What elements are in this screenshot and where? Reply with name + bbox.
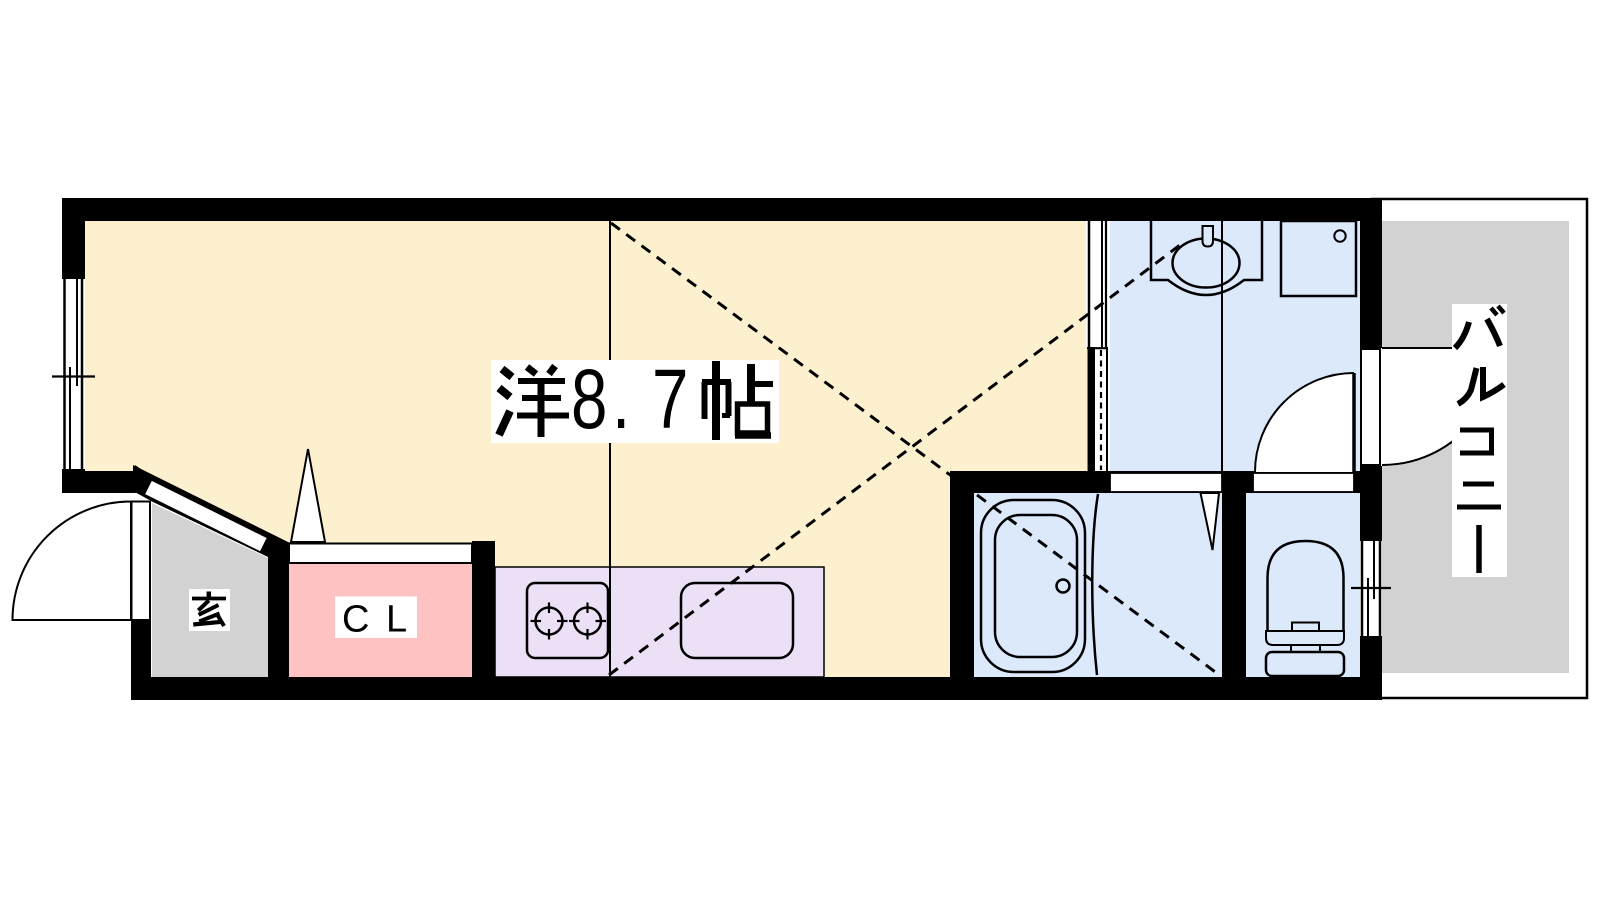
svg-text:7: 7 — [652, 352, 688, 446]
svg-text:C: C — [342, 599, 369, 641]
svg-text:8: 8 — [571, 352, 607, 446]
svg-text:.: . — [612, 352, 630, 446]
svg-text:L: L — [386, 599, 407, 641]
